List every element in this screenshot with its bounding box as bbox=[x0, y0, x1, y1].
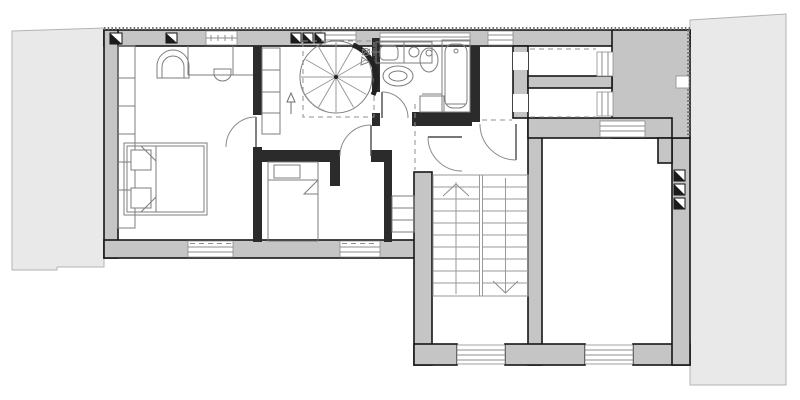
floor-plan-page bbox=[0, 0, 800, 400]
skylight-icon bbox=[674, 184, 685, 195]
pilaster bbox=[658, 138, 672, 163]
partition-bedroom1-upper bbox=[253, 46, 262, 115]
partition-bath-south bbox=[412, 112, 472, 126]
window-stair-glazing bbox=[321, 31, 356, 45]
recess-east bbox=[676, 76, 689, 88]
partition-jamb bbox=[371, 150, 384, 162]
window-bath-clerestory bbox=[380, 33, 470, 45]
partition-bedroom1-lower bbox=[253, 147, 262, 242]
wall-south-2 bbox=[505, 344, 585, 365]
adjacent-roof-left bbox=[12, 28, 104, 270]
skylights-east bbox=[674, 170, 685, 209]
partition-bedroom2-east bbox=[384, 150, 392, 242]
skylight-icon bbox=[291, 33, 301, 43]
skylight-icon bbox=[674, 170, 685, 181]
skylight-icon bbox=[674, 198, 685, 209]
opening-storage1-west bbox=[513, 52, 528, 70]
wall-stair-east bbox=[528, 118, 542, 365]
wall-storage-divider bbox=[528, 76, 612, 88]
partition-bath-west-stub bbox=[372, 113, 380, 126]
wall-west bbox=[104, 30, 118, 258]
window-storage1-east bbox=[597, 52, 613, 76]
window-storage2-east bbox=[597, 92, 613, 116]
partition-bedroom2-top bbox=[262, 150, 340, 162]
wall-south-1 bbox=[414, 344, 457, 365]
window-hall-north bbox=[488, 31, 513, 45]
skylight-icon bbox=[110, 33, 122, 44]
pillow bbox=[274, 165, 300, 178]
wall-south-west bbox=[104, 240, 432, 258]
floor-plan-canvas bbox=[0, 0, 800, 400]
partition-hall-west bbox=[470, 46, 480, 122]
spiral-center bbox=[334, 75, 338, 79]
adjacent-building-right bbox=[690, 14, 786, 385]
skylight-icon bbox=[166, 33, 177, 43]
wall-stair-west bbox=[414, 172, 432, 365]
opening-storage2-west bbox=[513, 94, 528, 112]
opening-large-room-north bbox=[600, 121, 645, 137]
partition-hook bbox=[330, 162, 340, 186]
